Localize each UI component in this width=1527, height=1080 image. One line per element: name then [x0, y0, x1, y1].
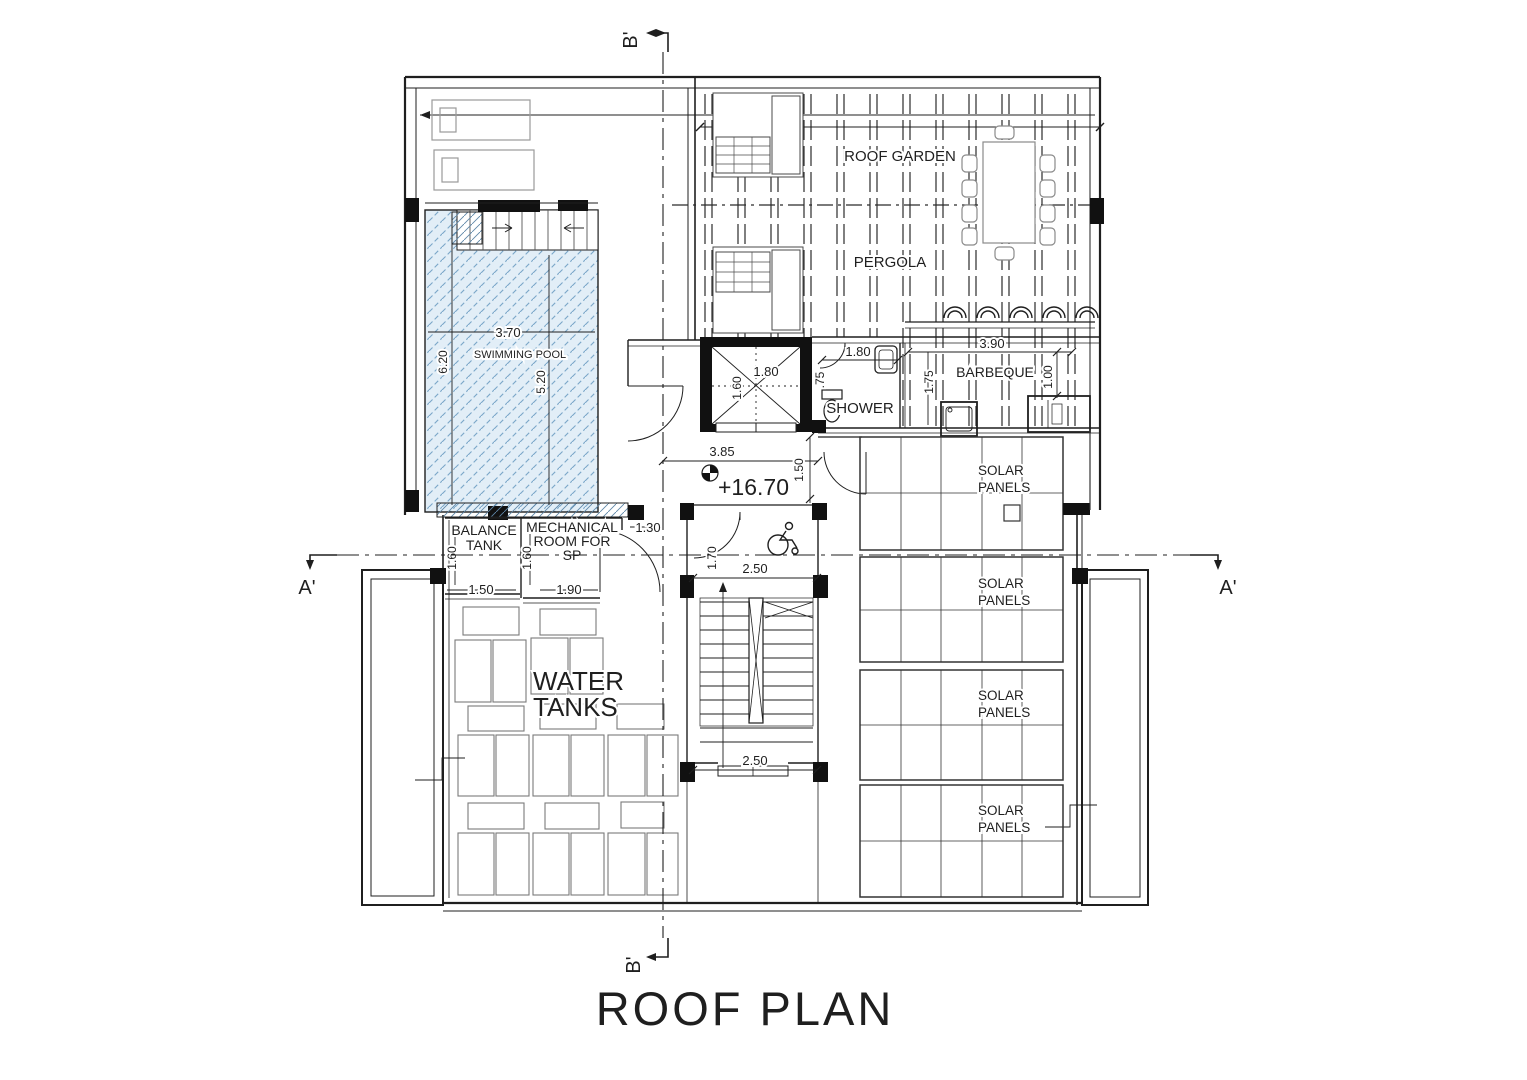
label-shower: SHOWER — [826, 400, 894, 417]
dim-door-width: 1.30 — [635, 520, 660, 535]
label-pergola: PERGOLA — [854, 254, 927, 271]
sofa-lower — [713, 247, 803, 333]
dim-barbeque-depth: 1.00 — [1041, 365, 1055, 389]
left-wing-roof — [362, 570, 443, 905]
leader-right — [1045, 805, 1097, 827]
label-balance-tank-1: BALANCE — [451, 522, 516, 538]
elevator-shaft: 1.80 1.60 — [700, 337, 812, 432]
water-tanks — [455, 607, 678, 895]
dim-pool-width: 3.70 — [495, 325, 520, 340]
column-left-wing — [430, 568, 446, 584]
section-marker-a-left: A' — [298, 555, 337, 599]
dim-pool-inner: 5.20 — [534, 370, 548, 394]
dim-corridor-depth: 1.50 — [792, 458, 806, 482]
dim-shower-side: .75 — [813, 371, 827, 388]
dim-shower-width: 1.80 — [845, 344, 870, 359]
dim-elevator-width: 1.80 — [753, 364, 778, 379]
label-a-right: A' — [1219, 577, 1236, 599]
label-swimming-pool: SWIMMING POOL — [474, 349, 566, 361]
column-right-wing — [1072, 568, 1088, 584]
label-solar-1a: SOLAR — [978, 463, 1024, 478]
right-wing-roof — [1082, 570, 1148, 905]
sofa-upper — [713, 93, 803, 177]
dim-corridor-width: 3.85 — [709, 444, 734, 459]
dim-balance-depth: 1.60 — [445, 546, 459, 570]
label-barbeque: BARBEQUE — [956, 364, 1034, 380]
dim-barbeque-side: 1.75 — [922, 370, 936, 394]
roof-plan-drawing: 13.90 3.70 6.20 5.20 SWIMMING POOL — [0, 0, 1527, 1080]
dim-elevator-depth: 1.60 — [730, 376, 744, 400]
label-solar-1b: PANELS — [978, 480, 1030, 495]
plan-canvas: 13.90 3.70 6.20 5.20 SWIMMING POOL — [0, 0, 1527, 1080]
label-roof-garden: ROOF GARDEN — [844, 148, 956, 165]
label-solar-2b: PANELS — [978, 593, 1030, 608]
dim-stair-bottom: 2.50 — [742, 753, 767, 768]
dim-mech-width: 1.90 — [556, 582, 581, 597]
label-solar-4b: PANELS — [978, 820, 1030, 835]
dim-barbeque-width: 3.90 — [979, 336, 1004, 351]
label-a-left: A' — [298, 577, 315, 599]
label-water-tanks-2: TANKS — [533, 692, 618, 722]
section-marker-a-right: A' — [1190, 555, 1237, 599]
section-marker-b-bottom: B' — [623, 938, 668, 974]
dim-stair-top: 2.50 — [742, 561, 767, 576]
dim-stair-landing: 1.70 — [705, 546, 719, 570]
label-solar-2a: SOLAR — [978, 576, 1024, 591]
sun-loungers — [432, 100, 534, 190]
dim-mech-depth: 1.60 — [520, 546, 534, 570]
swimming-pool: 3.70 6.20 5.20 SWIMMING POOL — [405, 198, 598, 520]
page-title: ROOF PLAN — [596, 982, 895, 1035]
level-marker: +16.70 — [702, 465, 789, 500]
dim-balance-width: 1.50 — [468, 582, 493, 597]
label-solar-3a: SOLAR — [978, 688, 1024, 703]
label-solar-3b: PANELS — [978, 705, 1030, 720]
label-solar-4a: SOLAR — [978, 803, 1024, 818]
label-b-top: B' — [620, 31, 642, 48]
label-b-bottom: B' — [623, 956, 645, 973]
label-balance-tank-2: TANK — [466, 537, 503, 553]
section-marker-b-top: B' — [620, 29, 668, 52]
label-level: +16.70 — [718, 474, 789, 500]
dim-pool-length: 6.20 — [436, 350, 450, 374]
